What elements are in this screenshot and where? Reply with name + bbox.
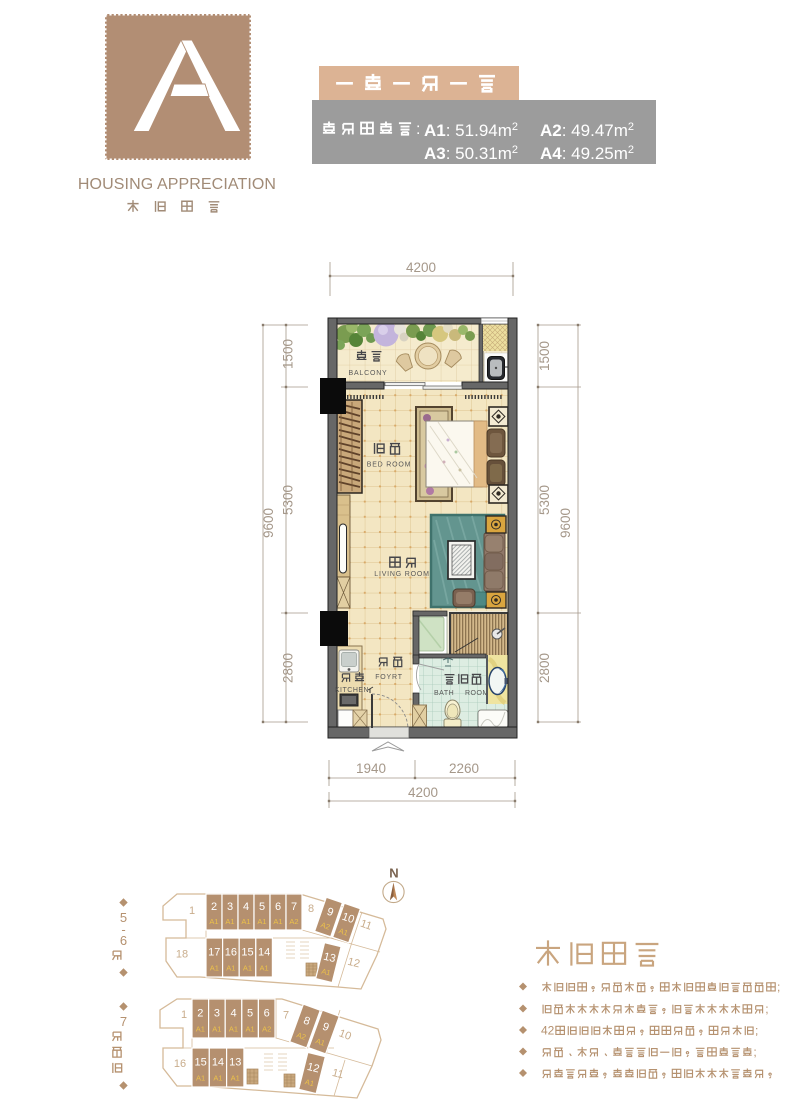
svg-text:13: 13 [229, 1057, 241, 1069]
svg-text:HOUSING APPRECIATION: HOUSING APPRECIATION [78, 176, 276, 193]
svg-text:LIVING ROOM: LIVING ROOM [374, 571, 429, 578]
svg-text:A1: A1 [246, 1024, 255, 1033]
svg-text:4200: 4200 [406, 260, 436, 275]
svg-text:BATH: BATH [434, 690, 454, 697]
svg-text:A1: A1 [273, 917, 282, 926]
svg-text:A2: A2 [289, 917, 298, 926]
svg-text:9600: 9600 [261, 508, 276, 538]
svg-text:A1: A1 [210, 963, 219, 972]
svg-text:A1: A1 [257, 917, 266, 926]
svg-text:1500: 1500 [281, 339, 296, 369]
svg-text:A1: A1 [212, 1024, 221, 1033]
svg-text:3: 3 [227, 901, 233, 913]
svg-text:1: 1 [189, 905, 195, 917]
svg-text:7: 7 [291, 901, 297, 913]
svg-text:A1: A1 [225, 917, 234, 926]
svg-text:5: 5 [247, 1008, 253, 1020]
svg-text:;: ; [777, 980, 780, 994]
svg-text:16: 16 [174, 1058, 186, 1070]
svg-text:A1: A1 [231, 1073, 240, 1082]
svg-text:A1: A1 [260, 963, 269, 972]
svg-text:;: ; [753, 1045, 756, 1059]
svg-text:A1: A1 [213, 1073, 222, 1082]
svg-text:9600: 9600 [558, 508, 573, 538]
svg-text:8: 8 [308, 903, 314, 915]
svg-text:A1: A1 [226, 963, 235, 972]
svg-text:ROOM: ROOM [465, 690, 489, 697]
svg-text:7: 7 [283, 1010, 289, 1022]
svg-text:A1: A1 [229, 1024, 238, 1033]
svg-text:2800: 2800 [281, 653, 296, 683]
svg-text:14: 14 [258, 947, 270, 959]
svg-text:4: 4 [243, 901, 249, 913]
svg-text:14: 14 [212, 1057, 224, 1069]
svg-text:4200: 4200 [408, 785, 438, 800]
svg-text:5300: 5300 [281, 485, 296, 515]
svg-text:18: 18 [176, 949, 188, 961]
svg-text::: : [416, 121, 420, 138]
svg-text:;: ; [765, 1002, 768, 1016]
svg-text:17: 17 [208, 947, 220, 959]
svg-text:BALCONY: BALCONY [348, 370, 387, 377]
svg-text:5: 5 [259, 901, 265, 913]
svg-text:15: 15 [241, 947, 253, 959]
svg-text:1940: 1940 [356, 761, 386, 776]
svg-text:N: N [389, 866, 398, 881]
svg-text:A1: A1 [243, 963, 252, 972]
svg-text:15: 15 [195, 1057, 207, 1069]
svg-text:A2: A2 [262, 1024, 271, 1033]
svg-text:4: 4 [230, 1008, 236, 1020]
svg-text:2260: 2260 [449, 761, 479, 776]
svg-text:BED ROOM: BED ROOM [367, 462, 412, 469]
svg-text:A1: A1 [209, 917, 218, 926]
svg-text:6: 6 [120, 933, 127, 948]
svg-text:6: 6 [264, 1008, 270, 1020]
svg-text:2: 2 [211, 901, 217, 913]
svg-text:5300: 5300 [537, 485, 552, 515]
svg-text:7: 7 [120, 1014, 127, 1029]
svg-text:A1: A1 [196, 1024, 205, 1033]
svg-text:KITCHEN: KITCHEN [335, 687, 369, 694]
svg-text:6: 6 [275, 901, 281, 913]
svg-text:3: 3 [214, 1008, 220, 1020]
svg-text:;: ; [755, 1023, 758, 1037]
svg-text:16: 16 [225, 947, 237, 959]
svg-text:FOYRT: FOYRT [375, 674, 403, 681]
svg-text:2800: 2800 [537, 653, 552, 683]
svg-text:2: 2 [197, 1008, 203, 1020]
svg-text:1: 1 [181, 1009, 187, 1021]
svg-text:A1: A1 [196, 1073, 205, 1082]
svg-text:A1: A1 [241, 917, 250, 926]
svg-text:1500: 1500 [537, 341, 552, 371]
svg-text:42: 42 [541, 1023, 555, 1037]
